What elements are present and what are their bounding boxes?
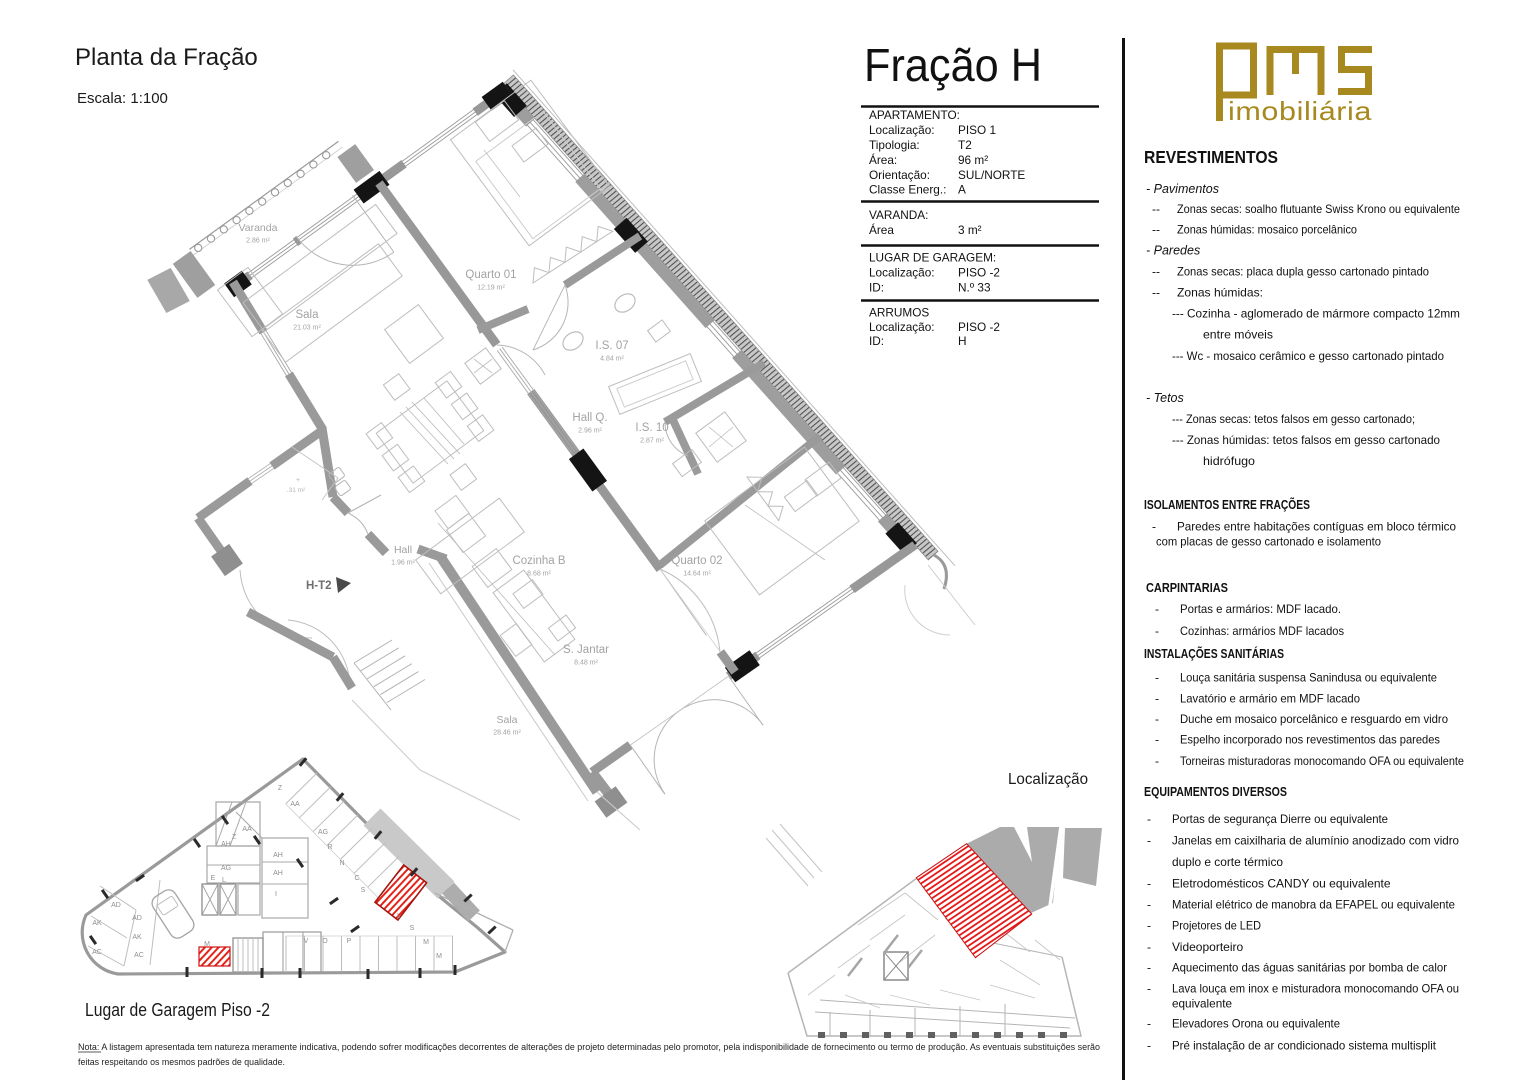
svg-text:-: - <box>1155 624 1159 638</box>
svg-text:Lugar de Garagem Piso -2: Lugar de Garagem Piso -2 <box>85 999 270 1020</box>
svg-text:AA: AA <box>242 826 252 833</box>
svg-text:Zonas húmidas: mosaico porcelâ: Zonas húmidas: mosaico porcelânico <box>1177 223 1357 237</box>
svg-text:8.48 m²: 8.48 m² <box>574 660 598 667</box>
svg-text:Localização:: Localização: <box>869 320 935 334</box>
svg-text:AK: AK <box>92 920 102 927</box>
svg-text:Z: Z <box>278 785 283 792</box>
svg-text:--: -- <box>1152 286 1160 300</box>
svg-text:-: - <box>1147 919 1151 933</box>
svg-text:Tipologia:: Tipologia: <box>869 138 920 152</box>
svg-text:E: E <box>211 875 216 882</box>
svg-text:Z: Z <box>232 834 237 841</box>
svg-text:I.S. 07: I.S. 07 <box>595 340 628 352</box>
svg-text:S: S <box>361 887 366 894</box>
svg-text:Orientação:: Orientação: <box>869 168 930 182</box>
svg-text:Projetores de LED: Projetores de LED <box>1172 919 1261 933</box>
svg-text:Nota: A listagem apresentada t: Nota: A listagem apresentada tem naturez… <box>78 1042 1100 1053</box>
svg-text:-: - <box>1155 692 1159 706</box>
svg-text:-: - <box>1147 1017 1151 1031</box>
svg-text:Localização:: Localização: <box>869 123 935 137</box>
svg-text:-: - <box>1155 712 1159 726</box>
svg-text:I: I <box>275 891 277 898</box>
svg-text:Portas e armários: MDF lacado.: Portas e armários: MDF lacado. <box>1180 602 1341 616</box>
svg-text:Espelho incorporado nos revest: Espelho incorporado nos revestimentos da… <box>1180 733 1440 747</box>
svg-text:APARTAMENTO:: APARTAMENTO: <box>869 108 960 122</box>
svg-text:Classe Energ.:: Classe Energ.: <box>869 183 946 197</box>
svg-text:Localização:: Localização: <box>869 265 935 279</box>
svg-text:Portas de segurança Dierre ou: Portas de segurança Dierre ou equivalent… <box>1172 812 1388 826</box>
svg-text:Varanda: Varanda <box>239 222 278 234</box>
svg-text:3 m²: 3 m² <box>958 223 982 237</box>
svg-text:M: M <box>204 941 210 948</box>
svg-text:-: - <box>1155 602 1159 616</box>
svg-text:28.46 m²: 28.46 m² <box>493 730 521 737</box>
svg-text:Cozinhas: armários MDF lacados: Cozinhas: armários MDF lacados <box>1180 624 1344 638</box>
svg-text:--- Zonas secas: tetos falsos: --- Zonas secas: tetos falsos em gesso c… <box>1172 412 1415 426</box>
svg-text:AH: AH <box>273 870 283 877</box>
svg-text:LUGAR DE GARAGEM:: LUGAR DE GARAGEM: <box>869 251 996 265</box>
svg-text:Escala: 1:100: Escala: 1:100 <box>77 90 168 107</box>
svg-text:PISO 1: PISO 1 <box>958 123 996 137</box>
svg-text:- Tetos: - Tetos <box>1146 391 1184 405</box>
svg-text:Localização: Localização <box>1008 771 1088 788</box>
svg-text:AA: AA <box>290 801 300 808</box>
svg-text:--: -- <box>1152 265 1160 279</box>
svg-text:hidrófugo: hidrófugo <box>1203 454 1255 468</box>
svg-text:Aquecimento das águas sanitári: Aquecimento das águas sanitárias por bom… <box>1172 961 1447 975</box>
svg-text:Sala: Sala <box>496 714 517 726</box>
svg-text:A: A <box>958 183 966 197</box>
svg-text:4.84 m²: 4.84 m² <box>600 356 624 363</box>
svg-text:O: O <box>322 938 328 945</box>
svg-text:Duche em mosaico porcelânico e: Duche em mosaico porcelânico e resguardo… <box>1180 712 1448 726</box>
svg-text:S. Jantar: S. Jantar <box>563 644 609 656</box>
svg-text:entre móveis: entre móveis <box>1203 328 1273 342</box>
svg-text:Hall: Hall <box>394 544 412 556</box>
svg-text:H-T2: H-T2 <box>306 580 332 592</box>
svg-text:V: V <box>304 938 309 945</box>
svg-text:Sala: Sala <box>295 309 319 321</box>
svg-text:Zonas secas: placa dupla gesso: Zonas secas: placa dupla gesso cartonado… <box>1177 265 1429 279</box>
svg-text:R: R <box>327 844 332 851</box>
svg-text:Lava louça em inox e misturado: Lava louça em inox e misturadora monocom… <box>1172 982 1459 996</box>
svg-text:com placas de gesso cartonado: com placas de gesso cartonado e isolamen… <box>1156 535 1381 549</box>
svg-text:Quarto 01: Quarto 01 <box>465 269 516 281</box>
svg-text:Louça sanitária suspensa Sanin: Louça sanitária suspensa Sanindusa ou eq… <box>1180 671 1437 685</box>
svg-text:Elevadores Orona ou equivalent: Elevadores Orona ou equivalente <box>1172 1017 1340 1031</box>
svg-text:12.19 m²: 12.19 m² <box>477 285 505 292</box>
svg-text:Material elétrico de manobra d: Material elétrico de manobra da EFAPEL o… <box>1172 898 1455 912</box>
svg-text:-: - <box>1147 898 1151 912</box>
svg-text:L: L <box>397 913 401 920</box>
svg-text:H: H <box>958 334 967 348</box>
svg-text:Pré instalação de ar condicion: Pré instalação de ar condicionado sistem… <box>1172 1039 1437 1053</box>
svg-text:N.º 33: N.º 33 <box>958 280 991 294</box>
svg-text:Fração H: Fração H <box>864 39 1042 91</box>
svg-text:PISO -2: PISO -2 <box>958 265 1000 279</box>
svg-text:1.96 m²: 1.96 m² <box>391 560 415 567</box>
svg-text:AD: AD <box>111 902 121 909</box>
svg-text:14.64 m²: 14.64 m² <box>683 571 711 578</box>
svg-text:-: - <box>1147 812 1151 826</box>
svg-text:CARPINTARIAS: CARPINTARIAS <box>1146 580 1228 595</box>
svg-text:equivalente: equivalente <box>1172 997 1232 1011</box>
svg-text:duplo e corte térmico: duplo e corte térmico <box>1172 855 1283 869</box>
svg-text:--: -- <box>1152 202 1160 216</box>
svg-text:-: - <box>1152 520 1156 534</box>
svg-text:C: C <box>354 875 359 882</box>
svg-text:M: M <box>436 953 442 960</box>
svg-text:Cozinha B: Cozinha B <box>512 555 565 567</box>
svg-text:imobiliária: imobiliária <box>1228 96 1372 126</box>
svg-text:96 m²: 96 m² <box>958 153 988 167</box>
svg-text:AH: AH <box>273 852 283 859</box>
svg-text:VARANDA:: VARANDA: <box>869 208 928 222</box>
svg-text:REVESTIMENTOS: REVESTIMENTOS <box>1144 147 1278 167</box>
svg-text:2.87 m²: 2.87 m² <box>640 438 664 445</box>
svg-text:I.S. 10: I.S. 10 <box>635 422 668 434</box>
svg-text:-: - <box>1147 834 1151 848</box>
svg-text:Torneiras misturadoras monocom: Torneiras misturadoras monocomando OFA o… <box>1180 754 1464 768</box>
svg-text:-: - <box>1147 877 1151 891</box>
svg-text:ARRUMOS: ARRUMOS <box>869 306 929 320</box>
svg-text:T2: T2 <box>958 138 972 152</box>
svg-text:--- Wc - mosaico cerâmico e ge: --- Wc - mosaico cerâmico e gesso carton… <box>1172 349 1444 363</box>
svg-text:ID:: ID: <box>869 334 884 348</box>
svg-text:AK: AK <box>132 934 142 941</box>
svg-text:Eletrodomésticos CANDY ou equi: Eletrodomésticos CANDY ou equivalente <box>1172 877 1391 891</box>
svg-text:- Paredes: - Paredes <box>1146 244 1200 258</box>
svg-text:2.86 m²: 2.86 m² <box>246 238 270 245</box>
svg-text:-: - <box>1147 961 1151 975</box>
svg-text:AH: AH <box>221 841 231 848</box>
svg-text:21.03 m²: 21.03 m² <box>293 325 321 332</box>
svg-text:Hall Q.: Hall Q. <box>572 412 607 424</box>
svg-text:-: - <box>1155 733 1159 747</box>
svg-text:-: - <box>1155 754 1159 768</box>
svg-text:- Pavimentos: - Pavimentos <box>1146 182 1219 196</box>
svg-text:S: S <box>410 925 415 932</box>
svg-text:Planta da Fração: Planta da Fração <box>75 44 258 71</box>
svg-text:AC: AC <box>92 949 102 956</box>
svg-text:Quarto 02: Quarto 02 <box>671 555 722 567</box>
svg-text:AD: AD <box>132 915 142 922</box>
svg-text:N: N <box>339 860 344 867</box>
svg-text:+: + <box>296 477 300 484</box>
svg-text:Zonas húmidas:: Zonas húmidas: <box>1177 286 1263 300</box>
svg-text:Videoporteiro: Videoporteiro <box>1172 940 1243 954</box>
svg-text:--: -- <box>1152 223 1160 237</box>
svg-text:Área: Área <box>869 223 894 237</box>
svg-text:SUL/NORTE: SUL/NORTE <box>958 168 1025 182</box>
svg-text:M: M <box>423 939 429 946</box>
svg-text:feitas respeitando os mesmos p: feitas respeitando os mesmos padrões de … <box>78 1057 285 1068</box>
svg-text:--- Cozinha - aglomerado de má: --- Cozinha - aglomerado de mármore comp… <box>1172 307 1460 321</box>
svg-text:-: - <box>1147 1039 1151 1053</box>
svg-text:Lavatório e armário em MDF lac: Lavatório e armário em MDF lacado <box>1180 692 1360 706</box>
svg-text:2.96 m²: 2.96 m² <box>578 428 602 435</box>
svg-text:Janelas em caixilharia de alum: Janelas em caixilharia de alumínio anodi… <box>1172 834 1459 848</box>
svg-text:Área:: Área: <box>869 153 897 167</box>
svg-text:.31 m²: .31 m² <box>287 487 306 494</box>
svg-text:Zonas secas: soalho flutuante: Zonas secas: soalho flutuante Swiss Kron… <box>1177 202 1460 216</box>
svg-text:L: L <box>222 877 226 884</box>
svg-text:EQUIPAMENTOS DIVERSOS: EQUIPAMENTOS DIVERSOS <box>1144 784 1287 799</box>
svg-text:ISOLAMENTOS ENTRE FRAÇÕES: ISOLAMENTOS ENTRE FRAÇÕES <box>1144 497 1310 512</box>
svg-text:AG: AG <box>221 865 231 872</box>
svg-text:PISO -2: PISO -2 <box>958 320 1000 334</box>
svg-text:P: P <box>347 938 352 945</box>
svg-text:AG: AG <box>318 829 328 836</box>
svg-text:ID:: ID: <box>869 280 884 294</box>
svg-text:INSTALAÇÕES SANITÁRIAS: INSTALAÇÕES SANITÁRIAS <box>1144 646 1284 661</box>
svg-text:Paredes entre habitações contí: Paredes entre habitações contíguas em bl… <box>1177 520 1456 534</box>
svg-text:-: - <box>1147 940 1151 954</box>
svg-text:-: - <box>1155 671 1159 685</box>
svg-text:-: - <box>1147 982 1151 996</box>
svg-text:--- Zonas húmidas: tetos falso: --- Zonas húmidas: tetos falsos em gesso… <box>1172 433 1440 447</box>
svg-text:AC: AC <box>134 952 144 959</box>
svg-text:8.68 m²: 8.68 m² <box>527 571 551 578</box>
